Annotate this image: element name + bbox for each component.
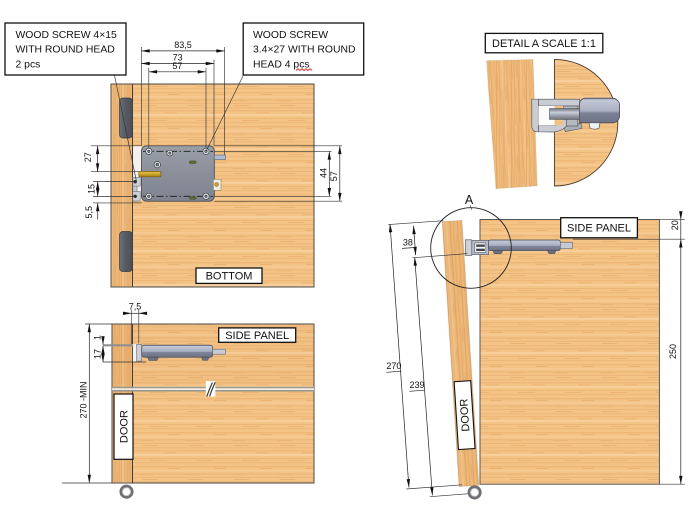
svg-text:7,5: 7,5 [129, 302, 142, 312]
svg-text:270 -MIN: 270 -MIN [78, 381, 88, 418]
svg-text:HEAD 4 pcs: HEAD 4 pcs [253, 59, 310, 70]
svg-text:83,5: 83,5 [174, 40, 192, 50]
svg-text:38: 38 [403, 237, 413, 247]
svg-text:SIDE PANEL: SIDE PANEL [225, 330, 289, 342]
svg-text:270: 270 [386, 361, 401, 371]
svg-text:20: 20 [670, 220, 680, 230]
svg-text:3.4×27 WITH ROUND: 3.4×27 WITH ROUND [253, 45, 356, 56]
svg-text:15: 15 [86, 184, 96, 194]
svg-text:DOOR: DOOR [458, 398, 472, 432]
svg-text:44: 44 [318, 168, 328, 178]
svg-text:1: 1 [93, 335, 103, 340]
svg-text:250: 250 [668, 344, 678, 359]
svg-text:17: 17 [93, 349, 103, 359]
svg-text:2 pcs: 2 pcs [16, 59, 41, 70]
svg-text:57: 57 [172, 61, 182, 71]
svg-text:57: 57 [329, 171, 339, 181]
svg-text:WOOD SCREW: WOOD SCREW [253, 30, 328, 41]
svg-text:27: 27 [83, 152, 93, 162]
svg-text:239: 239 [409, 380, 424, 390]
svg-text:DETAIL A SCALE 1:1: DETAIL A SCALE 1:1 [492, 38, 596, 50]
svg-text:WOOD SCREW 4×15: WOOD SCREW 4×15 [16, 30, 118, 41]
svg-text:DOOR: DOOR [118, 410, 130, 443]
svg-text:WITH ROUND HEAD: WITH ROUND HEAD [16, 45, 115, 56]
svg-text:A: A [465, 193, 474, 207]
svg-text:5,5: 5,5 [84, 206, 94, 219]
svg-text:SIDE PANEL: SIDE PANEL [567, 223, 631, 235]
svg-text:BOTTOM: BOTTOM [206, 271, 253, 283]
